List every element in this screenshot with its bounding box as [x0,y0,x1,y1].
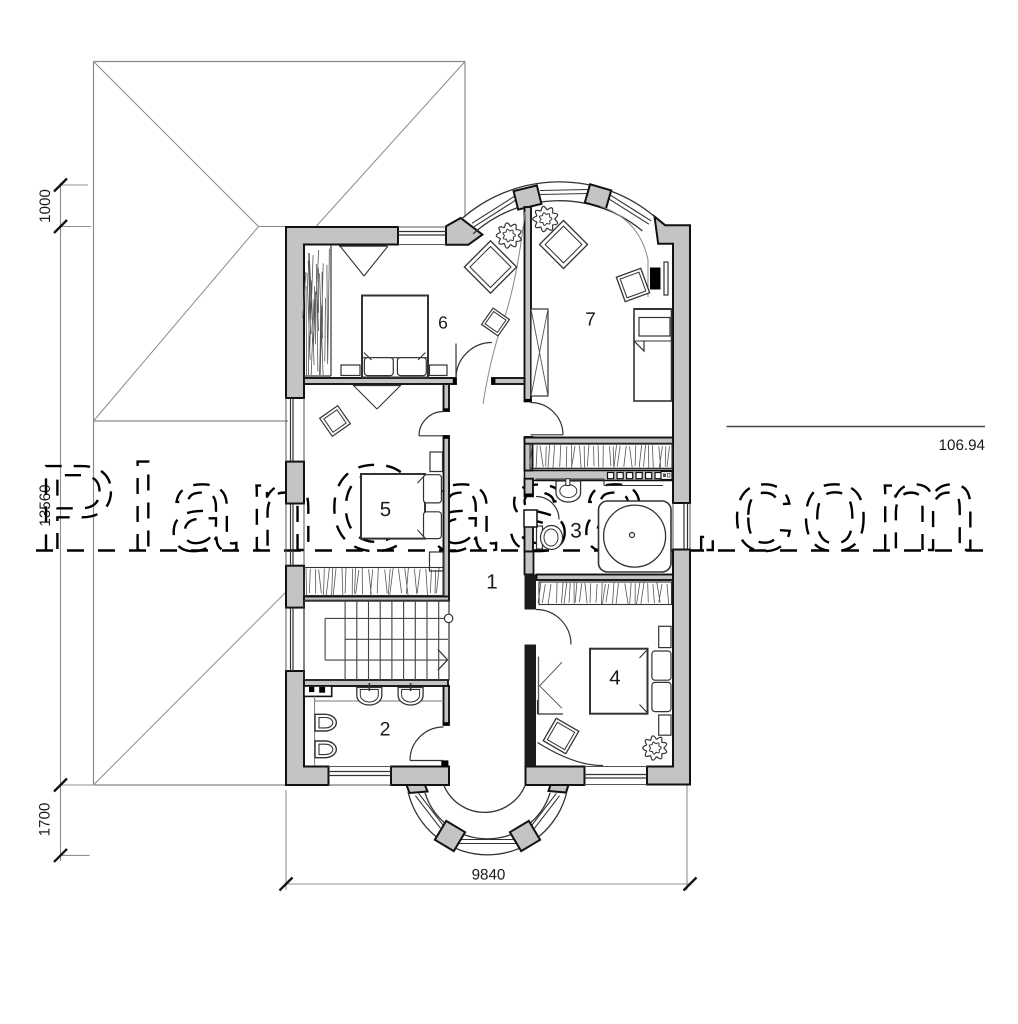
svg-text:.com: .com [690,440,986,576]
svg-text:1000: 1000 [37,189,54,223]
svg-text:1: 1 [486,571,497,594]
svg-text:1700: 1700 [37,803,54,837]
svg-text:3: 3 [570,520,582,543]
svg-text:PlanCasa: PlanCasa [36,440,661,576]
svg-text:2: 2 [380,719,391,741]
svg-text:4: 4 [609,667,620,690]
svg-text:5: 5 [380,498,391,521]
svg-text:9840: 9840 [472,867,506,884]
svg-text:6: 6 [438,313,448,333]
svg-text:7: 7 [585,310,596,331]
